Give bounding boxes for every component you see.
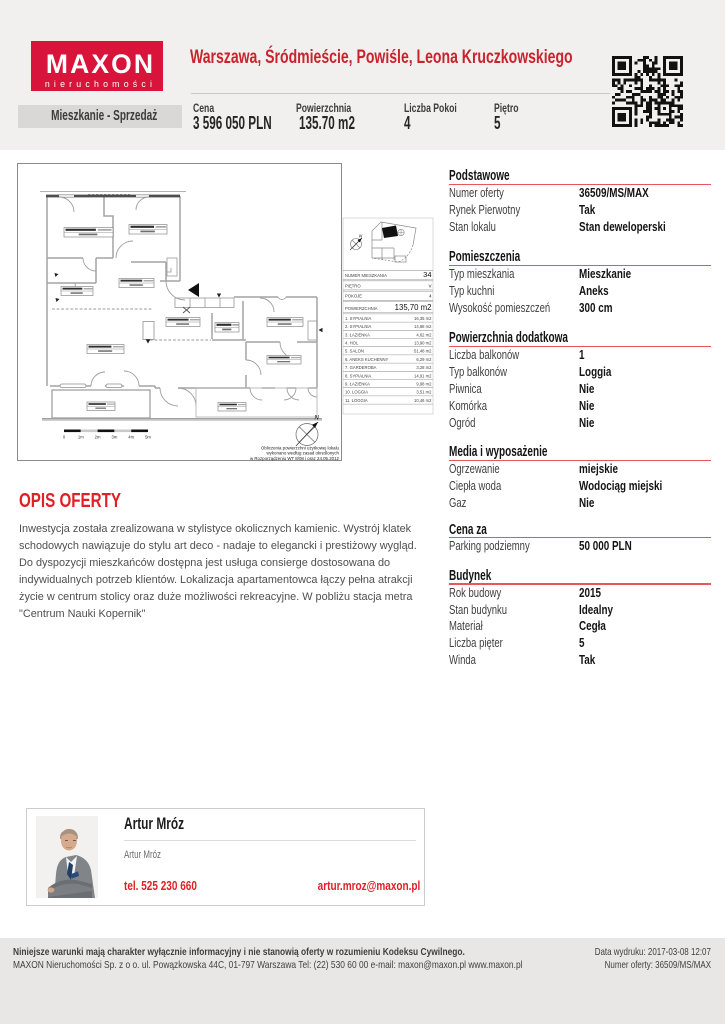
svg-text:POWIERZCHNIA: POWIERZCHNIA xyxy=(345,306,378,311)
svg-text:4,62 m2: 4,62 m2 xyxy=(416,332,432,337)
svg-text:11. LOGGIA: 11. LOGGIA xyxy=(345,398,368,403)
svg-text:w Rozporządzeniu WT 8/08 i ora: w Rozporządzeniu WT 8/08 i oraz 24.05.20… xyxy=(250,456,340,461)
svg-text:N: N xyxy=(359,234,363,239)
svg-text:1m: 1m xyxy=(78,435,84,440)
svg-text:4. HOL: 4. HOL xyxy=(345,341,359,346)
svg-text:3. ŁAZIENKA: 3. ŁAZIENKA xyxy=(345,332,370,337)
svg-text:8. SYPIALNIA: 8. SYPIALNIA xyxy=(345,373,372,378)
svg-text:4m: 4m xyxy=(128,435,134,440)
svg-text:6,29 m2: 6,29 m2 xyxy=(416,357,432,362)
svg-text:3m: 3m xyxy=(111,435,117,440)
svg-text:4: 4 xyxy=(429,294,432,299)
svg-text:10. LOGGIA: 10. LOGGIA xyxy=(345,390,368,395)
svg-text:5m: 5m xyxy=(145,435,151,440)
svg-text:13,90 m2: 13,90 m2 xyxy=(414,341,432,346)
svg-text:2. SYPIALNIA: 2. SYPIALNIA xyxy=(345,324,372,329)
svg-text:135,70 m2: 135,70 m2 xyxy=(395,303,432,312)
svg-text:16,35 m2: 16,35 m2 xyxy=(414,316,432,321)
svg-text:PIĘTRO: PIĘTRO xyxy=(345,283,361,288)
svg-text:2m: 2m xyxy=(95,435,101,440)
svg-text:NUMER MIESZKANIA: NUMER MIESZKANIA xyxy=(345,273,387,278)
svg-text:14,91 m2: 14,91 m2 xyxy=(414,373,432,378)
svg-text:1. SYPIALNIA: 1. SYPIALNIA xyxy=(345,316,372,321)
svg-text:14,88 m2: 14,88 m2 xyxy=(414,324,432,329)
svg-text:V: V xyxy=(429,283,432,288)
svg-text:9,98 m2: 9,98 m2 xyxy=(416,382,432,387)
svg-text:51,48 m2: 51,48 m2 xyxy=(414,349,432,354)
svg-text:POKOJE: POKOJE xyxy=(345,294,362,299)
svg-text:3,51 m2: 3,51 m2 xyxy=(416,390,432,395)
svg-text:34: 34 xyxy=(423,270,431,279)
svg-text:10,46 m2: 10,46 m2 xyxy=(414,398,432,403)
svg-text:5. SALON: 5. SALON xyxy=(345,349,364,354)
svg-text:9. ŁAZIENKA: 9. ŁAZIENKA xyxy=(345,382,370,387)
svg-text:3,28 m2: 3,28 m2 xyxy=(416,365,432,370)
svg-text:7. GARDEROBA: 7. GARDEROBA xyxy=(345,365,377,370)
svg-text:N: N xyxy=(315,416,320,422)
svg-text:6. ANEKS KUCHENNY: 6. ANEKS KUCHENNY xyxy=(345,357,388,362)
